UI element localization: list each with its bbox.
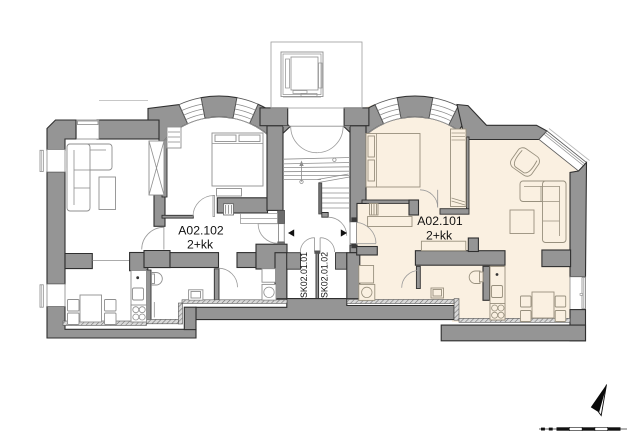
svg-text:A02.101: A02.101 — [417, 214, 463, 228]
svg-text:A02.102: A02.102 — [178, 224, 224, 238]
svg-text:SK02.01.01: SK02.01.01 — [299, 252, 309, 298]
svg-text:2+kk: 2+kk — [426, 229, 453, 243]
svg-text:SK02.01.02: SK02.01.02 — [319, 252, 329, 298]
svg-text:2+kk: 2+kk — [187, 238, 214, 252]
